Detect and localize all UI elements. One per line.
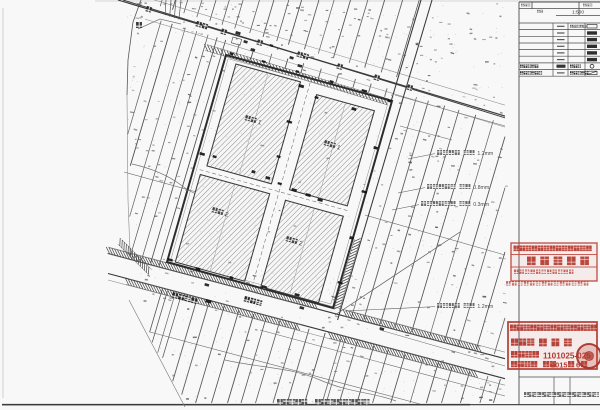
svg-text:1.2mm: 1.2mm — [477, 151, 493, 157]
svg-text:1.2mm: 1.2mm — [477, 304, 493, 310]
svg-text:2015: 2015 — [551, 361, 567, 370]
svg-text:1:500: 1:500 — [572, 10, 584, 16]
svg-text:0.8mm: 0.8mm — [473, 185, 489, 191]
svg-text:0.3mm: 0.3mm — [473, 202, 489, 208]
